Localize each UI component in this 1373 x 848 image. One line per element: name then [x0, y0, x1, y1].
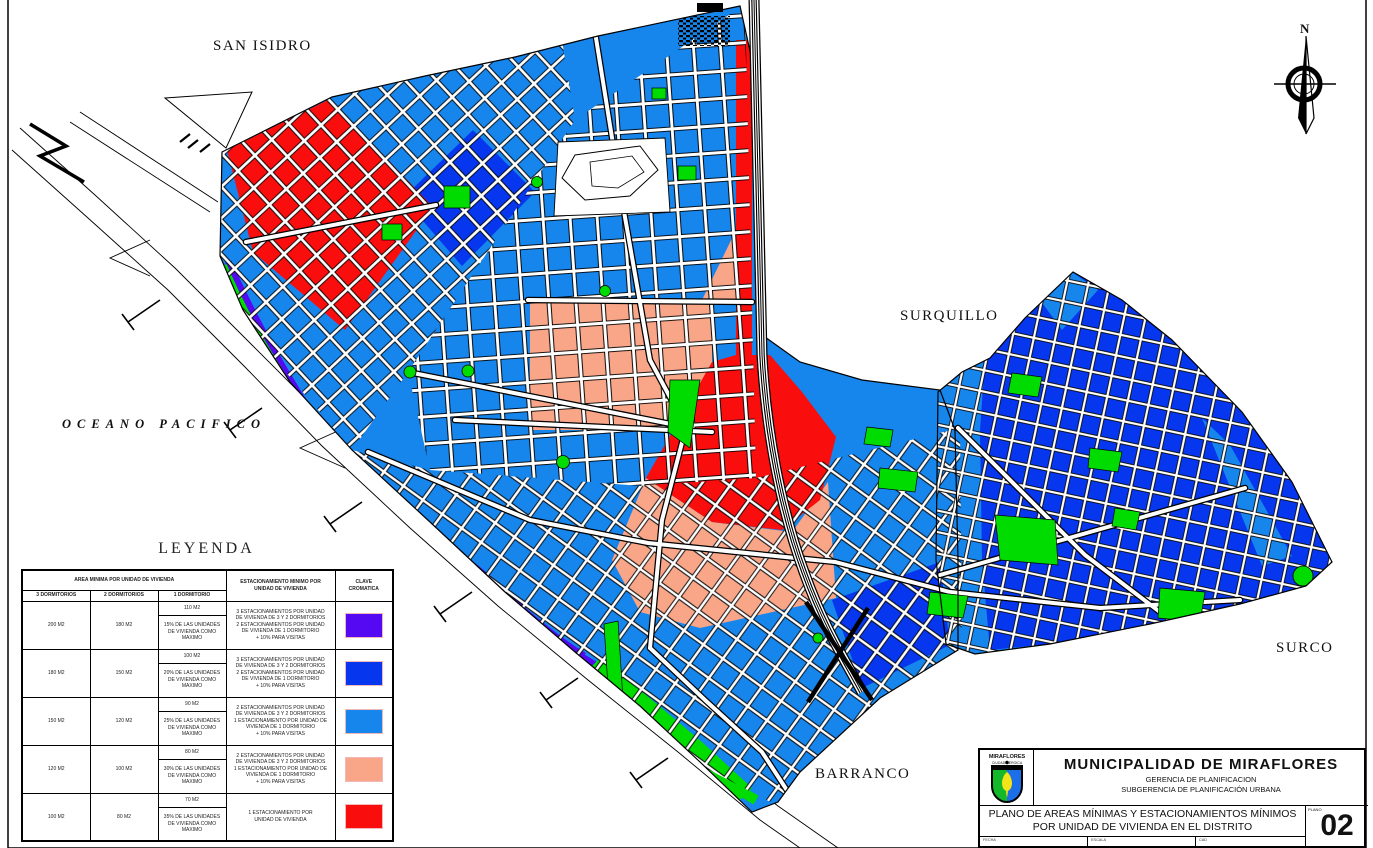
legend-cell: 80 M2 — [90, 793, 158, 841]
plan-title-line1: PLANO DE AREAS MÍNIMAS Y ESTACIONAMIENTO… — [980, 808, 1305, 821]
north-arrow-icon: N — [1274, 21, 1336, 134]
legend-cell: 2 ESTACIONAMIENTOS POR UNIDAD DE VIVIEND… — [226, 745, 335, 793]
legend-cell: 25% DE LAS UNIDADES DE VIVIENDA COMO MAX… — [158, 711, 226, 745]
field-cad: CAD — [1195, 836, 1305, 848]
plan-title-line2: POR UNIDAD DE VIVIENDA EN EL DISTRITO — [980, 821, 1305, 834]
legend-cell: 90 M2 — [158, 697, 226, 711]
plan-title: PLANO DE AREAS MÍNIMAS Y ESTACIONAMIENTO… — [980, 805, 1305, 836]
legend-cell: 100 M2 — [158, 649, 226, 663]
park-beach-strip — [388, 738, 462, 798]
legend-header-key: CLAVE CROMATICA — [335, 570, 393, 601]
color-swatch — [346, 614, 382, 637]
legend-cell: 150 M2 — [90, 649, 158, 697]
legend-cell: 180 M2 — [22, 649, 90, 697]
legend-cell: 70 M2 — [158, 793, 226, 807]
legend-cell: 80 M2 — [158, 745, 226, 759]
legend-cell: 2 ESTACIONAMIENTOS POR UNIDAD DE VIVIEND… — [226, 697, 335, 745]
legend-cell: 3 ESTACIONAMIENTOS POR UNIDAD DE VIVIEND… — [226, 601, 335, 649]
legend-swatch-cell — [335, 745, 393, 793]
legend-cell: 20% DE LAS UNIDADES DE VIVIENDA COMO MAX… — [158, 663, 226, 697]
legend-cell: 1 ESTACIONAMIENTO POR UNIDAD DE VIVIENDA — [226, 793, 335, 841]
legend-cell: 3 ESTACIONAMIENTOS POR UNIDAD DE VIVIEND… — [226, 649, 335, 697]
legend-header-3dorm: 3 DORMITORIOS — [22, 590, 90, 601]
legend-cell: 30% DE LAS UNIDADES DE VIVIENDA COMO MAX… — [158, 759, 226, 793]
legend-header-1dorm: 1 DORMITORIO — [158, 590, 226, 601]
label-ocean: OCEANO PACIFICO — [62, 417, 266, 431]
department-name: GERENCIA DE PLANIFICACION — [1034, 775, 1368, 784]
shield-icon — [992, 766, 1022, 802]
legend-swatch-cell — [335, 793, 393, 841]
title-block: MIRAFLORES CIUDAD HEROICA MUNICIPALIDAD … — [978, 748, 1366, 848]
huaca-site — [554, 138, 670, 216]
plan-number: 02 — [1306, 812, 1368, 839]
legend-cell: 100 M2 — [22, 793, 90, 841]
legend-header-area: AREA MINIMA POR UNIDAD DE VIVIENDA — [22, 570, 226, 590]
legend-header-2dorm: 2 DORMITORIOS — [90, 590, 158, 601]
color-swatch — [346, 710, 382, 733]
subdepartment-name: SUBGERENCIA DE PLANIFICACIÓN URBANA — [1034, 785, 1368, 794]
legend-cell: 150 M2 — [22, 697, 90, 745]
legend-swatch-cell — [335, 697, 393, 745]
legend-cell: 35% DE LAS UNIDADES DE VIVIENDA COMO MAX… — [158, 807, 226, 841]
label-san-isidro: SAN ISIDRO — [213, 38, 312, 54]
legend-cell: 120 M2 — [90, 697, 158, 745]
legend-cell: 120 M2 — [22, 745, 90, 793]
hatched-blocks — [678, 16, 730, 46]
legend-swatch-cell — [335, 649, 393, 697]
logo-text-1: MIRAFLORES — [989, 754, 1026, 760]
label-surquillo: SURQUILLO — [900, 308, 999, 324]
legend-panel: LEYENDA AREA MINIMA POR UNIDAD DE VIVIEN… — [21, 540, 392, 842]
plan-number-cell: PLANO 02 — [1305, 805, 1368, 848]
color-swatch — [346, 805, 382, 828]
legend-cell: 180 M2 — [90, 601, 158, 649]
legend-title: LEYENDA — [21, 540, 392, 558]
label-barranco: BARRANCO — [815, 766, 910, 782]
legend-header-parking: ESTACIONAMIENTO MINIMO POR UNIDAD DE VIV… — [226, 570, 335, 601]
organization-name: MUNICIPALIDAD DE MIRAFLORES — [1034, 756, 1368, 773]
plan-sheet: SAN ISIDRO SURQUILLO SURCO BARRANCO OCEA… — [0, 0, 1373, 848]
black-block — [697, 3, 723, 12]
legend-table: AREA MINIMA POR UNIDAD DE VIVIENDA ESTAC… — [21, 569, 394, 842]
municipality-logo: MIRAFLORES CIUDAD HEROICA — [980, 750, 1034, 805]
color-swatch — [346, 662, 382, 685]
title-block-header: MUNICIPALIDAD DE MIRAFLORES GERENCIA DE … — [1034, 750, 1368, 805]
legend-cell: 15% DE LAS UNIDADES DE VIVIENDA COMO MAX… — [158, 615, 226, 649]
svg-text:N: N — [1300, 21, 1310, 36]
label-surco: SURCO — [1276, 640, 1334, 656]
color-swatch — [346, 758, 382, 781]
field-fecha: FECHA — [980, 836, 1087, 848]
legend-swatch-cell — [335, 601, 393, 649]
field-escala: ESCALA — [1087, 836, 1195, 848]
legend-cell: 200 M2 — [22, 601, 90, 649]
legend-cell: 100 M2 — [90, 745, 158, 793]
legend-cell: 110 M2 — [158, 601, 226, 615]
